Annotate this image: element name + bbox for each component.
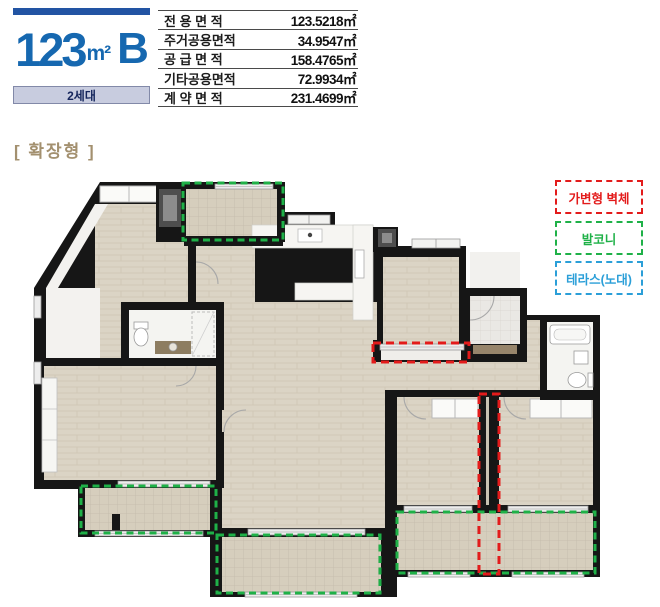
entry-mat bbox=[473, 345, 517, 354]
floor-plan-page: 123 m² B 2세대 전 용 면 적 123.5218㎡ 주거공용면적 34… bbox=[0, 0, 660, 607]
bathroom-left bbox=[129, 310, 216, 358]
floor-plan-drawing bbox=[0, 0, 660, 607]
bathroom-right bbox=[547, 322, 593, 391]
entry-floor bbox=[470, 296, 520, 344]
